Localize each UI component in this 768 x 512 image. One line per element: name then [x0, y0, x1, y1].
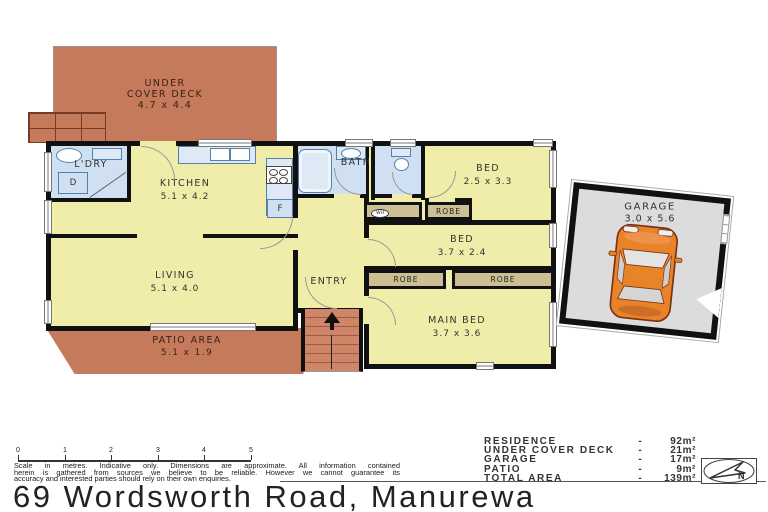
property-address: 69 Wordsworth Road, Manurewa: [13, 479, 536, 512]
kitchen-dims: 5.1 x 4.2: [130, 191, 240, 204]
scale-tick-label: 4: [199, 447, 209, 454]
wall-bed2-top: [364, 220, 556, 225]
scale-tick-label: 0: [13, 447, 23, 454]
wall-laundry-bottom: [51, 198, 131, 202]
window-top-bath: [345, 139, 373, 147]
car-icon: [595, 219, 693, 328]
bed2-dims: 3.7 x 2.4: [407, 247, 517, 260]
doorway-deck-kitchen: [140, 141, 176, 146]
burner-icon: [279, 177, 288, 184]
scale-tick-label: 2: [106, 447, 116, 454]
garage-door-notch: [695, 286, 722, 318]
deck-name-line2: COVER DECK: [127, 89, 203, 100]
burner-icon: [279, 169, 288, 176]
living-dims: 5.1 x 4.0: [120, 283, 230, 296]
compass-n-label: N: [738, 471, 745, 481]
patio-dims: 5.1 x 1.9: [161, 348, 213, 358]
entry-stairs: [301, 309, 363, 372]
patio-name: PATIO AREA: [152, 335, 222, 346]
main-bed-name: MAIN BED: [428, 315, 486, 326]
bed2-label: BED 3.7 x 2.4: [407, 234, 517, 259]
north-arrow-icon: [701, 458, 757, 484]
bed2-name: BED: [450, 234, 474, 245]
scale-tick-label: 5: [246, 447, 256, 454]
deck-label: UNDER COVER DECK 4.7 x 4.4: [127, 78, 203, 111]
floor-plan-page: UNDER COVER DECK 4.7 x 4.4 D L'DRY F KIT…: [0, 0, 768, 512]
stairs-arrow-stem: [330, 322, 334, 330]
window-right-bed1: [549, 150, 557, 188]
deck-dims: 4.7 x 4.4: [138, 100, 192, 111]
window-bottom-mainbed: [476, 362, 494, 370]
sliding-door-living-patio: [150, 323, 256, 331]
garage-name: GARAGE: [624, 201, 675, 212]
dryer-icon: D: [58, 172, 88, 194]
deck-steps: [28, 112, 106, 143]
scale-bar: 0 1 2 3 4 5: [14, 447, 259, 462]
stairs-center-line: [331, 335, 332, 369]
window-top-kitchen: [198, 139, 252, 147]
garage: GARAGE 3.0 x 5.6: [559, 182, 731, 340]
window-left-living-upper: [44, 200, 52, 234]
robe-bed1: ROBE: [425, 202, 472, 220]
laundry-label: L'DRY: [56, 159, 126, 172]
scale-tick-label: 3: [153, 447, 163, 454]
bathtub-icon: [298, 149, 332, 193]
water-heater-cupboard: WH: [364, 202, 422, 220]
patio-label: PATIO AREA 5.1 x 1.9: [132, 335, 242, 359]
main-bed-dims: 3.7 x 3.6: [402, 328, 512, 341]
living-label: LIVING 5.1 x 4.0: [120, 270, 230, 295]
burner-icon: [269, 169, 278, 176]
main-bed-label: MAIN BED 3.7 x 3.6: [402, 315, 512, 340]
stove-icon: [266, 166, 292, 184]
toilet-bowl-icon: [394, 158, 409, 171]
window-right-bed2: [549, 223, 557, 248]
robe-main-bed-right: ROBE: [452, 270, 554, 289]
wall-wc-right: [421, 141, 425, 200]
window-left-living-lower: [44, 300, 52, 324]
burner-icon: [269, 177, 278, 184]
window-left-kitchen: [44, 152, 52, 192]
scale-tick-label: 1: [60, 447, 70, 454]
deck-name-line1: UNDER: [145, 78, 186, 89]
kitchen-sink-icon: [210, 148, 250, 161]
living-name: LIVING: [155, 270, 195, 281]
robe-main-bed-left: ROBE: [366, 270, 446, 289]
bed1-name: BED: [476, 163, 500, 174]
garage-label: GARAGE 3.0 x 5.6: [577, 201, 723, 225]
kitchen-label: KITCHEN 5.1 x 4.2: [130, 178, 240, 203]
window-top-wc: [390, 139, 416, 147]
window-right-mainbed: [549, 302, 557, 347]
toilet-tank-icon: [391, 148, 411, 157]
compass: N: [701, 458, 757, 484]
water-heater-icon: WH: [371, 209, 389, 218]
area-legend: RESIDENCE - 92m² UNDER COVER DECK - 21m²…: [484, 437, 696, 483]
window-top-bed1: [533, 139, 553, 147]
wall-kitchen-living-left: [51, 234, 137, 238]
